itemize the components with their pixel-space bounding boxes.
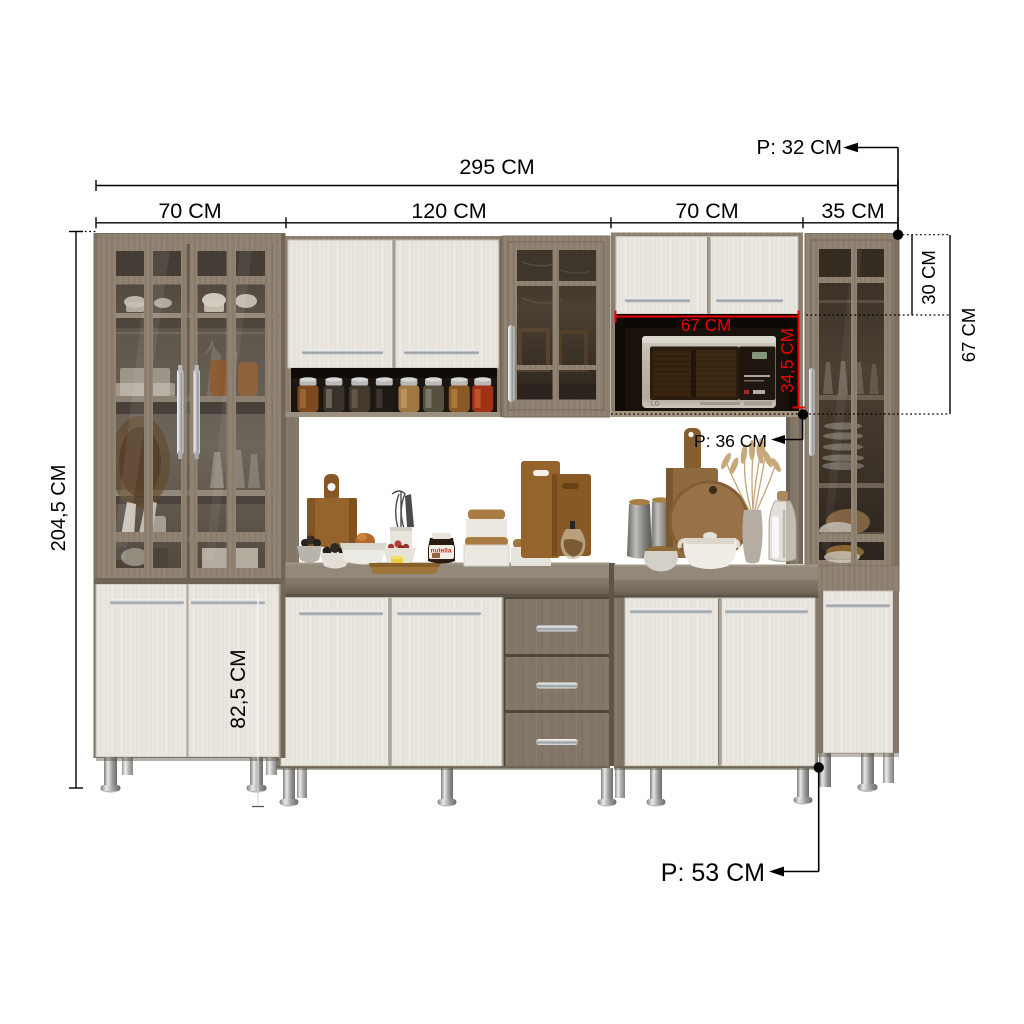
svg-text:70 CM: 70 CM [158,199,221,223]
svg-text:67 CM: 67 CM [958,308,979,363]
svg-text:67 CM: 67 CM [681,315,732,335]
svg-text:P: 53 CM: P: 53 CM [661,859,765,887]
svg-text:LG: LG [651,401,660,408]
svg-text:P: 32 CM: P: 32 CM [757,136,842,159]
svg-text:204,5 CM: 204,5 CM [48,465,70,552]
svg-text:P: 36 CM: P: 36 CM [694,431,767,451]
svg-text:70 CM: 70 CM [675,199,738,223]
svg-text:120 CM: 120 CM [411,199,486,223]
svg-text:30 CM: 30 CM [918,250,939,305]
svg-text:82,5 CM: 82,5 CM [227,649,250,728]
svg-text:34,5 CM: 34,5 CM [777,328,797,393]
svg-text:35 CM: 35 CM [821,199,884,223]
svg-text:295 CM: 295 CM [459,155,534,179]
